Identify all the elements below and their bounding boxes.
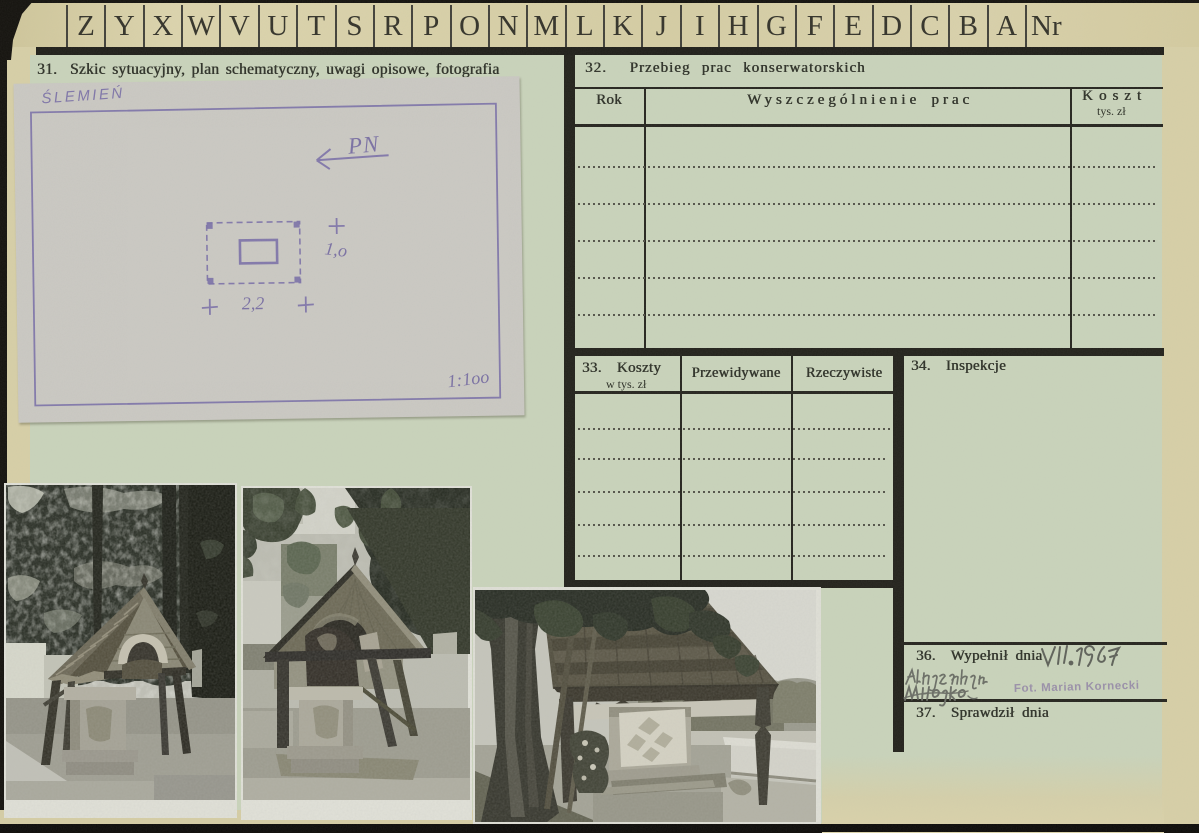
svg-text:2,2: 2,2 bbox=[242, 293, 265, 313]
svg-text:Fot. Marian Kornecki: Fot. Marian Kornecki bbox=[1014, 680, 1140, 695]
svg-text:PN: PN bbox=[346, 131, 381, 159]
svg-text:1,o: 1,o bbox=[324, 238, 349, 261]
